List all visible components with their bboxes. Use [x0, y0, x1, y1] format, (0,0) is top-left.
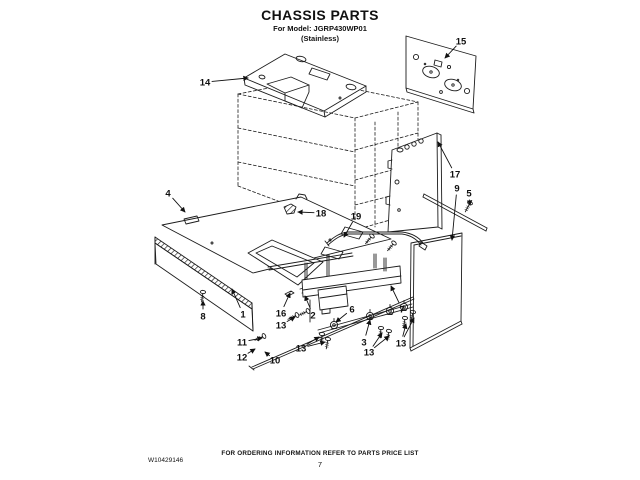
callout-11: 11: [237, 338, 262, 349]
callout-13: 13: [364, 333, 389, 359]
svg-text:17: 17: [450, 170, 461, 181]
svg-text:14: 14: [200, 78, 211, 89]
side-panel-part-9: [410, 233, 462, 351]
callout-3: 3: [361, 320, 370, 349]
svg-text:6: 6: [349, 305, 354, 316]
svg-text:16: 16: [276, 309, 287, 320]
svg-text:2: 2: [310, 311, 315, 322]
svg-text:13: 13: [364, 348, 375, 359]
callout-12: 12: [237, 349, 255, 364]
callout-9: 9: [452, 184, 460, 241]
svg-text:9: 9: [454, 184, 459, 195]
svg-text:10: 10: [270, 356, 281, 367]
callout-8: 8: [200, 301, 205, 323]
svg-text:12: 12: [237, 353, 248, 364]
svg-text:13: 13: [276, 321, 287, 332]
svg-text:8: 8: [200, 312, 205, 323]
callout-10: 10: [265, 352, 280, 367]
svg-text:15: 15: [456, 37, 467, 48]
svg-text:19: 19: [351, 212, 362, 223]
svg-text:4: 4: [165, 189, 171, 200]
inner-panel-part-17: [386, 133, 442, 232]
page-number: 7: [0, 460, 640, 469]
catalog-page: CHASSIS PARTS For Model: JGRP430WP01 (St…: [0, 0, 640, 480]
ordering-note: FOR ORDERING INFORMATION REFER TO PARTS …: [0, 450, 640, 457]
svg-text:18: 18: [316, 209, 327, 220]
svg-text:11: 11: [237, 338, 248, 349]
svg-text:5: 5: [466, 189, 472, 200]
rear-panel-part-15: [406, 36, 476, 113]
callout-4: 4: [165, 189, 185, 213]
callout-16: 16: [276, 293, 290, 320]
svg-text:7: 7: [399, 305, 404, 316]
svg-text:1: 1: [240, 310, 246, 321]
svg-text:13: 13: [296, 344, 307, 355]
parts-diagram: 14151795418198116132671112101331313: [0, 0, 640, 480]
callout-14: 14: [200, 78, 248, 89]
svg-text:13: 13: [396, 339, 407, 350]
